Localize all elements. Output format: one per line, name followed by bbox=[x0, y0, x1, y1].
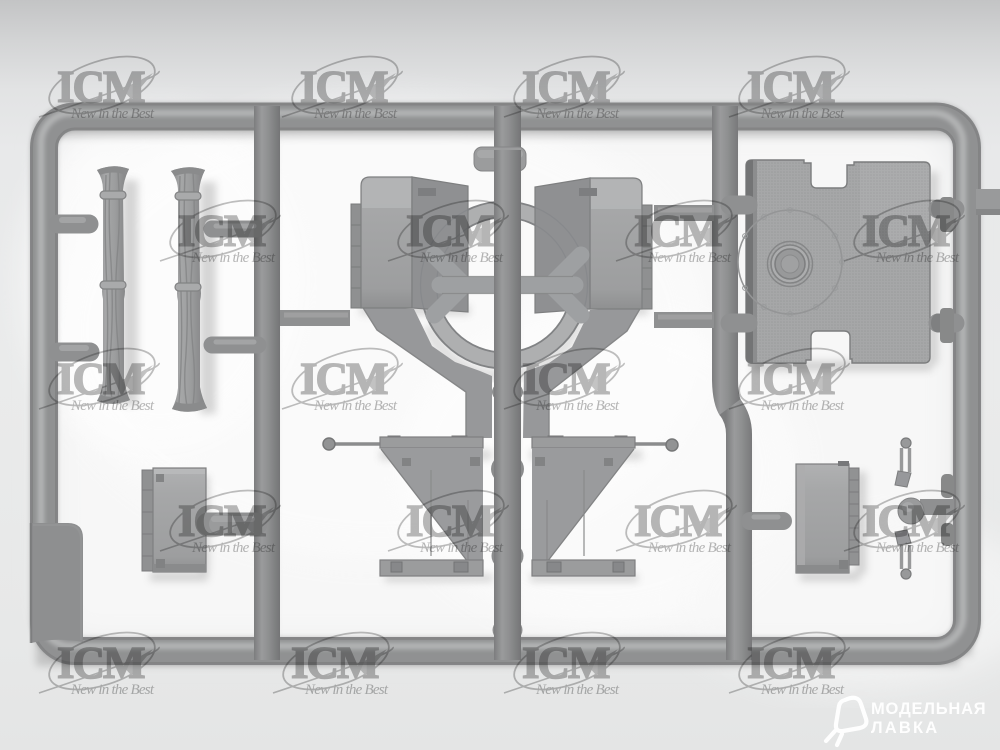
svg-text:ЛАВКА: ЛАВКА bbox=[871, 719, 939, 737]
svg-text:МОДЕЛЬНАЯ: МОДЕЛЬНАЯ bbox=[871, 700, 986, 718]
